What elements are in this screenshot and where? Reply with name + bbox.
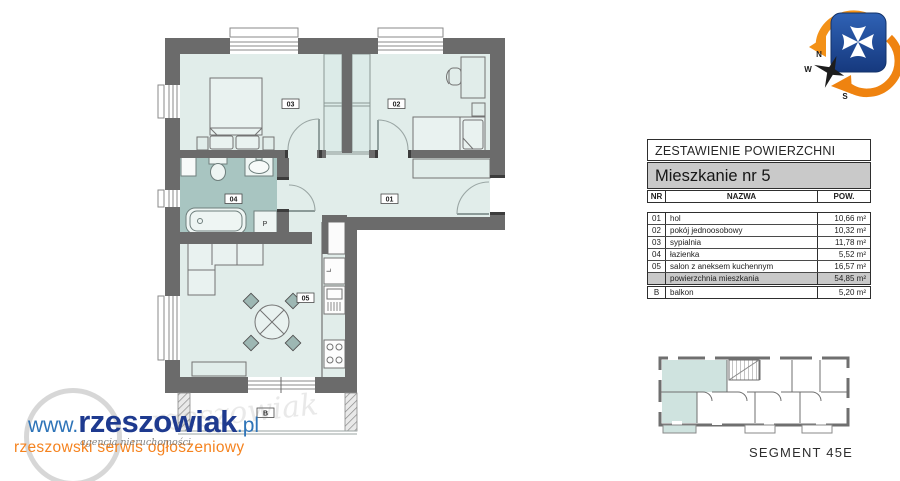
balcony-table: B balkon 5,20 m²	[647, 286, 871, 299]
room-rows: 01 hol 10,66 m² 02 pokój jednoosobowy 10…	[647, 212, 871, 285]
room-label-05: 05	[302, 296, 310, 303]
toilet-tank	[209, 157, 227, 164]
row-nr: 01	[648, 213, 666, 224]
balcony-row: B balkon 5,20 m²	[648, 287, 870, 298]
toilet-bowl	[211, 164, 226, 181]
total-area: 54,85 m²	[818, 273, 870, 284]
total-row: powierzchnia mieszkania 54,85 m²	[648, 272, 870, 284]
col-header-area: POW.	[818, 191, 870, 202]
row-area: 5,20 m²	[818, 287, 870, 298]
key-plan-balconies	[663, 425, 832, 433]
watermark: www. rzeszowiak .pl agencja nieruchomośc…	[14, 404, 259, 457]
table-row: 03 sypialnia 11,78 m²	[648, 236, 870, 248]
single-bed	[413, 117, 485, 152]
row-name: sypialnia	[666, 237, 818, 248]
row-area: 10,32 m²	[818, 225, 870, 236]
floor-plan-advert: P	[0, 0, 900, 481]
city-crest-shield	[831, 13, 886, 72]
table-row: 05 salon z aneksem kuchennym 16,57 m²	[648, 260, 870, 272]
washer-label: P	[263, 221, 268, 228]
table-column-headers: NR NAZWA POW.	[647, 190, 871, 203]
watermark-www: www.	[28, 414, 78, 438]
row-nr: 04	[648, 249, 666, 260]
watermark-domain: rzeszowiak	[78, 404, 237, 440]
key-plan	[658, 356, 850, 433]
row-name: salon z aneksem kuchennym	[666, 261, 818, 272]
balcony-rail-right	[345, 393, 357, 431]
duct-shaft	[181, 157, 196, 176]
compass-n: N	[816, 50, 822, 59]
compass-s: S	[842, 92, 848, 101]
row-nr: 03	[648, 237, 666, 248]
total-name: powierzchnia mieszkania	[666, 273, 818, 284]
table-row: 02 pokój jednoosobowy 10,32 m²	[648, 224, 870, 236]
room-label-02: 02	[393, 102, 401, 109]
row-name: łazienka	[666, 249, 818, 260]
row-nr: B	[648, 287, 666, 298]
stove	[324, 340, 345, 368]
col-header-nr: NR	[648, 191, 666, 202]
watermark-tld: .pl	[237, 414, 259, 438]
row-name: hol	[666, 213, 818, 224]
room-label-03: 03	[287, 102, 295, 109]
segment-caption: SEGMENT 45E	[700, 445, 853, 460]
row-nr: 05	[648, 261, 666, 272]
fridge-label: L	[326, 268, 333, 272]
row-nr: 02	[648, 225, 666, 236]
watermark-script: agencja nieruchomości	[80, 437, 191, 448]
row-name: pokój jednoosobowy	[666, 225, 818, 236]
row-nr	[648, 273, 666, 284]
row-name: balkon	[666, 287, 818, 298]
row-area: 10,66 m²	[818, 213, 870, 224]
row-area: 16,57 m²	[818, 261, 870, 272]
room-label-01: 01	[386, 197, 394, 204]
compass-w: W	[804, 65, 812, 74]
col-header-name: NAZWA	[666, 191, 818, 202]
row-area: 11,78 m²	[818, 237, 870, 248]
compass-rose: N W S	[804, 13, 899, 101]
kitchen-shaft	[328, 222, 345, 254]
row-area: 5,52 m²	[818, 249, 870, 260]
table-row: 04 łazienka 5,52 m²	[648, 248, 870, 260]
bathtub	[186, 208, 246, 234]
table-title: ZESTAWIENIE POWIERZCHNI	[647, 139, 871, 161]
table-row: 01 hol 10,66 m²	[648, 213, 870, 224]
watermark-url: www. rzeszowiak .pl	[28, 404, 259, 440]
apartment-name: Mieszkanie nr 5	[647, 162, 871, 189]
apartment-plan: P	[158, 28, 505, 434]
room-label-04: 04	[230, 197, 238, 204]
